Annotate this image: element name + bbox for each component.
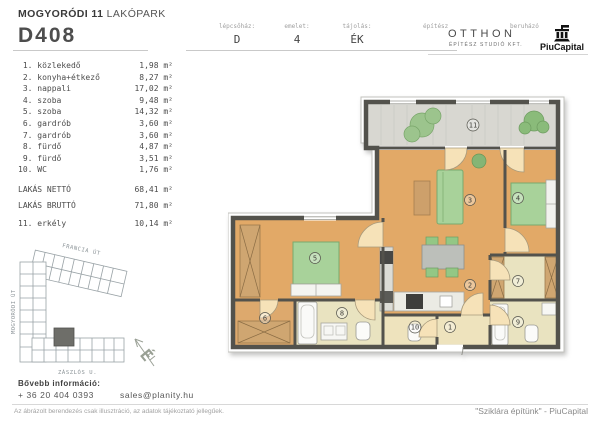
room-name: 10. WC [18, 164, 47, 176]
architect-subtitle: ÉPÍTÉSZ STUDIÓ KFT. [449, 42, 523, 48]
project-title: MOGYORÓDI 11 LAKÓPARK [18, 8, 166, 20]
footer-divider [12, 404, 588, 405]
floor-plan-sheet: MOGYORÓDI 11 LAKÓPARK D408 lépcsőház: D … [0, 0, 600, 424]
svg-text:2: 2 [468, 282, 472, 290]
room-row: 1. közlekedő1,98 m² [18, 60, 173, 72]
divider-under-unit-id [13, 50, 148, 51]
room-name: 6. gardrób [18, 118, 71, 130]
more-info-title: Bővebb információ: [18, 379, 100, 388]
piucapital-column-icon [551, 25, 573, 42]
room-label: 1 [445, 322, 456, 333]
developer-name: PiuCapital [540, 42, 584, 52]
room-area: 3,51 m² [139, 153, 173, 165]
plant-icon [472, 154, 486, 168]
svg-text:7: 7 [516, 278, 520, 286]
room-label: 10 [409, 321, 421, 333]
room-label: 11 [467, 119, 479, 131]
svg-text:6: 6 [263, 315, 267, 323]
room-name: 5. szoba [18, 106, 61, 118]
room-area: 1,76 m² [139, 164, 173, 176]
room-label: 6 [260, 313, 271, 324]
room-area: 17,02 m² [134, 83, 173, 95]
room-row: 10. WC1,76 m² [18, 164, 173, 176]
divider-under-fields [186, 50, 457, 51]
room-name: 3. nappali [18, 83, 71, 95]
gross-area-row: LAKÁS BRUTTÓ71,80 m² [18, 198, 173, 215]
entry-opening [437, 345, 463, 350]
street-mogyorodi: MOGYORÓDI ÚT [10, 289, 17, 334]
architect-label: építész [423, 23, 448, 30]
dining-table [422, 245, 464, 269]
room-name: 1. közlekedő [18, 60, 81, 72]
toilet [356, 322, 370, 340]
room-row: 5. szoba14,32 m² [18, 106, 173, 118]
room-area: 8,27 m² [139, 72, 173, 84]
street-francia: FRANCIA ÚT [62, 242, 102, 257]
room-area: 9,48 m² [139, 95, 173, 107]
apartment-floor-plan: 1 2 3 4 5 6 7 8 9 10 11 [228, 95, 568, 355]
room-label: 3 [465, 195, 476, 206]
disclaimer-text: Az ábrázolt berendezés csak illusztráció… [14, 408, 224, 415]
room-name: 7. gardrób [18, 130, 71, 142]
unit-fields: lépcsőház: D emelet: 4 tájolás: ÉK [207, 23, 387, 46]
architect-name: OTTHON [448, 28, 515, 40]
svg-text:8: 8 [340, 310, 344, 318]
project-name-regular: LAKÓPARK [103, 8, 165, 20]
chair [446, 268, 458, 277]
field-floor-value: 4 [267, 33, 327, 46]
company-slogan: "Sziklára építünk" - PiuCapital [475, 406, 588, 416]
room-row: 8. fürdő4,87 m² [18, 141, 173, 153]
room-row: 7. gardrób3,60 m² [18, 130, 173, 142]
net-area-value: 68,41 m² [134, 182, 173, 199]
net-area-row: LAKÁS NETTÓ68,41 m² [18, 182, 173, 199]
unit-id: D408 [18, 24, 76, 48]
kitchen-sink [440, 296, 452, 307]
site-location-map: FRANCIA ÚT MOGYORÓDI ÚT ZÁSZLÓS U. É [6, 234, 168, 380]
highlighted-unit [54, 328, 74, 346]
room-label: 9 [513, 317, 524, 328]
field-staircase-label: lépcsőház: [207, 23, 267, 30]
room-row: 3. nappali17,02 m² [18, 83, 173, 95]
bed [511, 183, 547, 225]
field-floor: emelet: 4 [267, 23, 327, 46]
room-area: 4,87 m² [139, 141, 173, 153]
field-orientation-value: ÉK [327, 33, 387, 46]
room-label: 7 [513, 276, 524, 287]
room-label: 2 [465, 280, 476, 291]
svg-text:1: 1 [448, 324, 452, 332]
room-label: 5 [310, 253, 321, 264]
phone-number: + 36 20 404 0393 [18, 390, 94, 400]
toilet [525, 325, 538, 342]
project-name-bold: MOGYORÓDI 11 [18, 8, 103, 20]
balcony-row: 11. erkély10,14 m² [18, 218, 173, 230]
contact-line: + 36 20 404 0393 sales@planity.hu [18, 390, 194, 400]
svg-text:9: 9 [516, 319, 520, 327]
room-row: 2. konyha+étkező8,27 m² [18, 72, 173, 84]
field-orientation-label: tájolás: [327, 23, 387, 30]
tv-cabinet [414, 181, 430, 215]
room-name: 4. szoba [18, 95, 61, 107]
room-area: 3,60 m² [139, 118, 173, 130]
room-row: 6. gardrób3,60 m² [18, 118, 173, 130]
room-name: 2. konyha+étkező [18, 72, 100, 84]
divider-under-architect [428, 54, 588, 55]
gross-area-label: LAKÁS BRUTTÓ [18, 198, 76, 215]
room-area: 3,60 m² [139, 130, 173, 142]
cooktop [406, 294, 423, 309]
kitchen-counter [394, 292, 464, 311]
developer-label: beruházó [510, 23, 539, 30]
svg-text:4: 4 [516, 195, 520, 203]
balcony-label: 11. erkély [18, 218, 66, 230]
email-address[interactable]: sales@planity.hu [120, 390, 194, 400]
field-orientation: tájolás: ÉK [327, 23, 387, 46]
net-area-label: LAKÁS NETTÓ [18, 182, 71, 199]
area-summary: LAKÁS NETTÓ68,41 m² LAKÁS BRUTTÓ71,80 m² [18, 182, 173, 215]
street-zaszlos: ZÁSZLÓS U. [58, 369, 97, 376]
room-label: 4 [513, 193, 524, 204]
room-row: 9. fürdő3,51 m² [18, 153, 173, 165]
room-row: 4. szoba9,48 m² [18, 95, 173, 107]
room-list: 1. közlekedő1,98 m² 2. konyha+étkező8,27… [18, 60, 173, 230]
room-name: 8. fürdő [18, 141, 61, 153]
compass-north-letter: É [136, 345, 157, 365]
washbasin [542, 303, 556, 315]
room-name: 9. fürdő [18, 153, 61, 165]
svg-text:11: 11 [469, 122, 477, 130]
room-area: 1,98 m² [139, 60, 173, 72]
svg-text:5: 5 [313, 255, 317, 263]
room-label: 8 [337, 308, 348, 319]
balcony-area: 10,14 m² [134, 218, 173, 230]
room-area: 14,32 m² [134, 106, 173, 118]
gross-area-value: 71,80 m² [134, 198, 173, 215]
svg-text:3: 3 [468, 197, 472, 205]
washbasin-counter [321, 323, 347, 340]
field-staircase-value: D [207, 33, 267, 46]
field-floor-label: emelet: [267, 23, 327, 30]
chair [426, 268, 438, 277]
svg-text:10: 10 [411, 324, 419, 332]
field-staircase: lépcsőház: D [207, 23, 267, 46]
sofa [437, 170, 463, 224]
